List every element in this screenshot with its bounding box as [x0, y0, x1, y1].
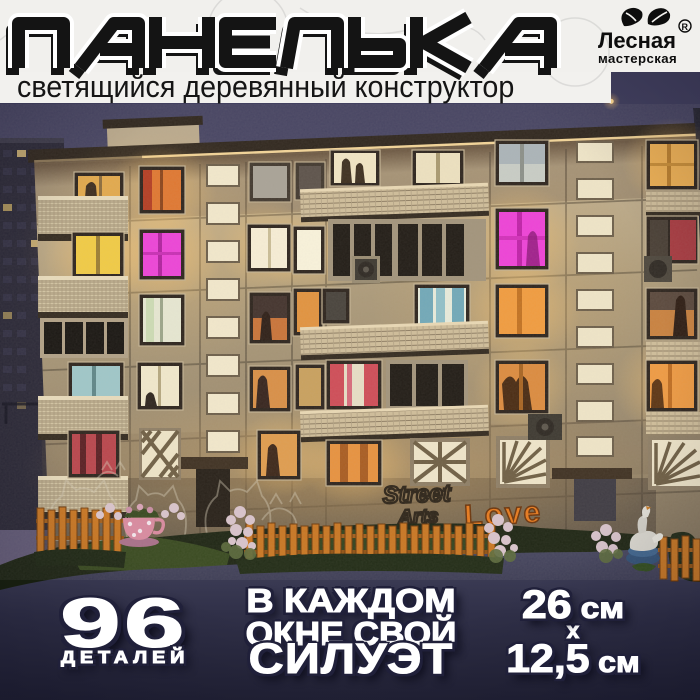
- svg-text:R: R: [682, 22, 689, 32]
- svg-text:мастерская: мастерская: [598, 51, 677, 66]
- svg-text:Лесная: Лесная: [598, 28, 676, 53]
